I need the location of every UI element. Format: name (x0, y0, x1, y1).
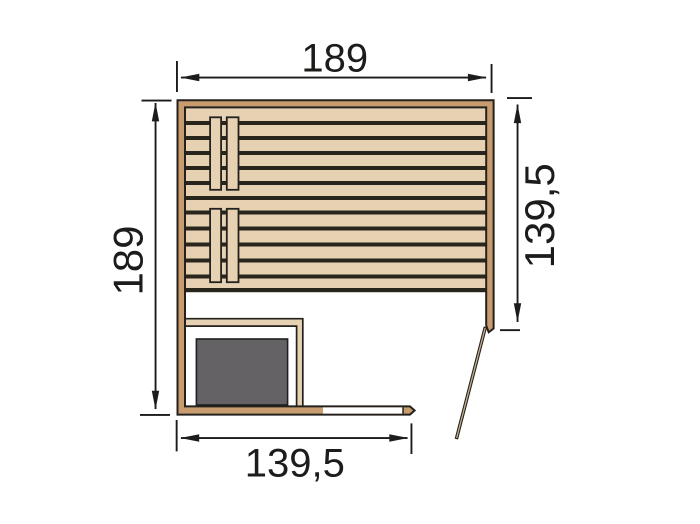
svg-text:189: 189 (301, 36, 368, 80)
svg-text:189: 189 (104, 225, 151, 295)
svg-text:139,5: 139,5 (245, 441, 345, 485)
svg-text:139,5: 139,5 (516, 163, 563, 268)
